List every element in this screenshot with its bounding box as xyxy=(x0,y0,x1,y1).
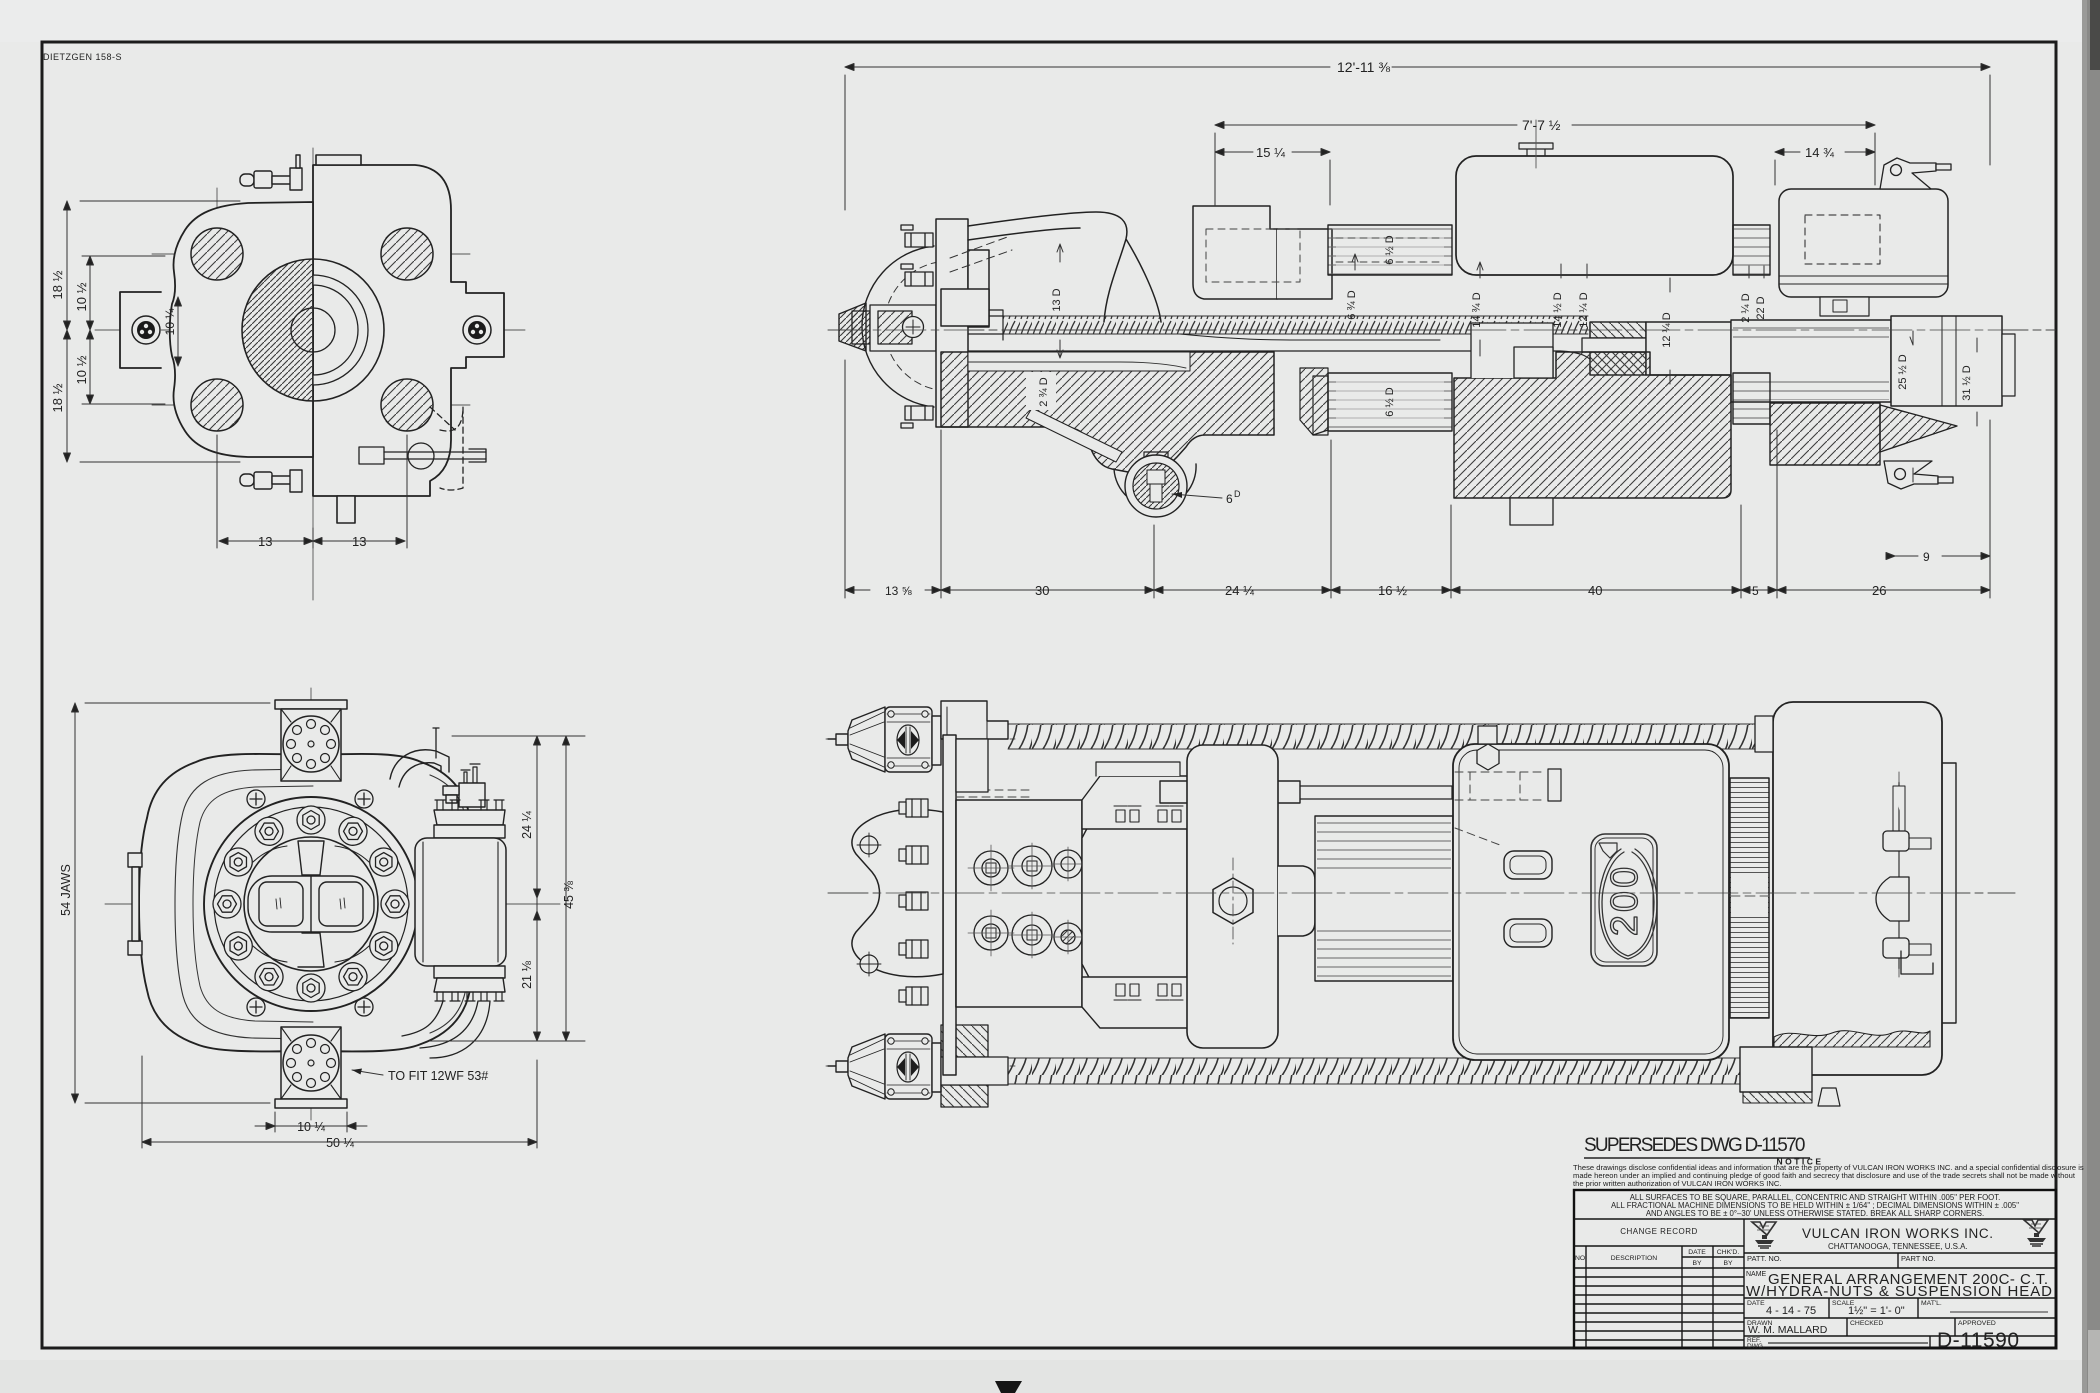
svg-text:18 ½: 18 ½ xyxy=(50,270,65,299)
svg-text:6 ½ D: 6 ½ D xyxy=(1384,235,1396,264)
svg-text:AND ANGLES TO BE ± 0°–30' UNLE: AND ANGLES TO BE ± 0°–30' UNLESS OTHERWI… xyxy=(1646,1209,1984,1218)
svg-text:CHATTANOOGA, TENNESSEE, U.S.A.: CHATTANOOGA, TENNESSEE, U.S.A. xyxy=(1828,1242,1968,1251)
svg-text:21 ⅛: 21 ⅛ xyxy=(520,961,534,989)
svg-text:26: 26 xyxy=(1872,583,1886,598)
svg-text:APPROVED: APPROVED xyxy=(1958,1320,1996,1327)
svg-text:15 ¼: 15 ¼ xyxy=(1256,145,1285,160)
svg-text:7'-7 ½: 7'-7 ½ xyxy=(1522,117,1561,133)
svg-text:13 D: 13 D xyxy=(1051,288,1063,311)
svg-text:200: 200 xyxy=(1604,864,1646,936)
svg-text:12 ¼ D: 12 ¼ D xyxy=(1578,292,1590,328)
svg-text:18 ½: 18 ½ xyxy=(50,383,65,412)
svg-text:50 ¼: 50 ¼ xyxy=(326,1136,354,1150)
svg-text:54 JAWS: 54 JAWS xyxy=(59,864,73,916)
svg-text:45 ⅜: 45 ⅜ xyxy=(562,881,576,909)
svg-text:PART NO.: PART NO. xyxy=(1901,1254,1936,1263)
svg-text:DATE: DATE xyxy=(1688,1249,1706,1256)
svg-text:NO.: NO. xyxy=(1575,1255,1587,1262)
svg-text:6 ½ D: 6 ½ D xyxy=(1384,387,1396,416)
svg-text:25 ½ D: 25 ½ D xyxy=(1897,354,1909,390)
svg-text:1½" = 1'- 0": 1½" = 1'- 0" xyxy=(1848,1305,1905,1317)
svg-text:5: 5 xyxy=(1752,584,1759,598)
svg-text:13: 13 xyxy=(352,534,366,549)
svg-text:SUPERSEDES DWG D-11570: SUPERSEDES DWG D-11570 xyxy=(1584,1135,1806,1156)
svg-text:CHANGE RECORD: CHANGE RECORD xyxy=(1620,1227,1698,1236)
svg-text:CHK'D.: CHK'D. xyxy=(1717,1249,1740,1256)
svg-text:DIETZGEN 158-S: DIETZGEN 158-S xyxy=(43,52,122,62)
svg-text:D: D xyxy=(1234,489,1241,499)
svg-text:13 ⅝: 13 ⅝ xyxy=(885,584,913,598)
svg-text:16 ½: 16 ½ xyxy=(1378,583,1407,598)
svg-text:PATT. NO.: PATT. NO. xyxy=(1747,1254,1782,1263)
svg-text:CHECKED: CHECKED xyxy=(1850,1320,1883,1327)
svg-text:BY: BY xyxy=(1692,1260,1702,1267)
svg-text:DESCRIPTION: DESCRIPTION xyxy=(1611,1255,1658,1262)
svg-text:24 ¼: 24 ¼ xyxy=(520,811,534,839)
svg-text:the prior written authorizatio: the prior written authorization of VULCA… xyxy=(1573,1179,1781,1188)
svg-text:14 ½ D: 14 ½ D xyxy=(1552,292,1564,328)
svg-text:DATE: DATE xyxy=(1747,1300,1765,1307)
svg-text:NAME: NAME xyxy=(1746,1271,1767,1278)
svg-text:10 ½: 10 ½ xyxy=(74,282,89,311)
svg-text:10 ¼: 10 ¼ xyxy=(163,308,177,336)
svg-text:DWG.: DWG. xyxy=(1747,1343,1765,1350)
svg-text:6 ¾ D: 6 ¾ D xyxy=(1346,290,1358,319)
svg-text:14 ¾ D: 14 ¾ D xyxy=(1471,292,1483,328)
svg-text:22 D: 22 D xyxy=(1755,296,1767,319)
svg-text:40: 40 xyxy=(1588,583,1602,598)
svg-text:W/HYDRA-NUTS & SUSPENSION HEA: W/HYDRA-NUTS & SUSPENSION HEAD xyxy=(1746,1283,2052,1300)
svg-text:9: 9 xyxy=(1923,550,1930,564)
svg-text:14 ¾: 14 ¾ xyxy=(1805,145,1834,160)
svg-text:6: 6 xyxy=(1226,492,1233,506)
svg-text:W. M. MALLARD: W. M. MALLARD xyxy=(1748,1324,1828,1336)
svg-text:D-11590: D-11590 xyxy=(1937,1329,2020,1352)
svg-text:10 ¼: 10 ¼ xyxy=(297,1120,325,1134)
svg-text:2 ¾ D: 2 ¾ D xyxy=(1038,377,1050,406)
svg-text:4 - 14 - 75: 4 - 14 - 75 xyxy=(1766,1305,1816,1317)
svg-text:BY: BY xyxy=(1723,1260,1733,1267)
svg-text:VULCAN IRON WORKS INC.: VULCAN IRON WORKS INC. xyxy=(1802,1226,1994,1241)
svg-text:13: 13 xyxy=(258,534,272,549)
svg-text:24 ¼: 24 ¼ xyxy=(1225,583,1254,598)
svg-text:TO FIT 12WF 53#: TO FIT 12WF 53# xyxy=(388,1069,488,1083)
svg-text:10 ½: 10 ½ xyxy=(74,355,89,384)
svg-text:12'-11 ⅜: 12'-11 ⅜ xyxy=(1337,59,1390,75)
svg-text:30: 30 xyxy=(1035,583,1049,598)
svg-text:MAT'L.: MAT'L. xyxy=(1921,1300,1942,1307)
svg-text:31 ½ D: 31 ½ D xyxy=(1961,365,1973,401)
svg-text:2 ¼ D: 2 ¼ D xyxy=(1740,293,1752,322)
